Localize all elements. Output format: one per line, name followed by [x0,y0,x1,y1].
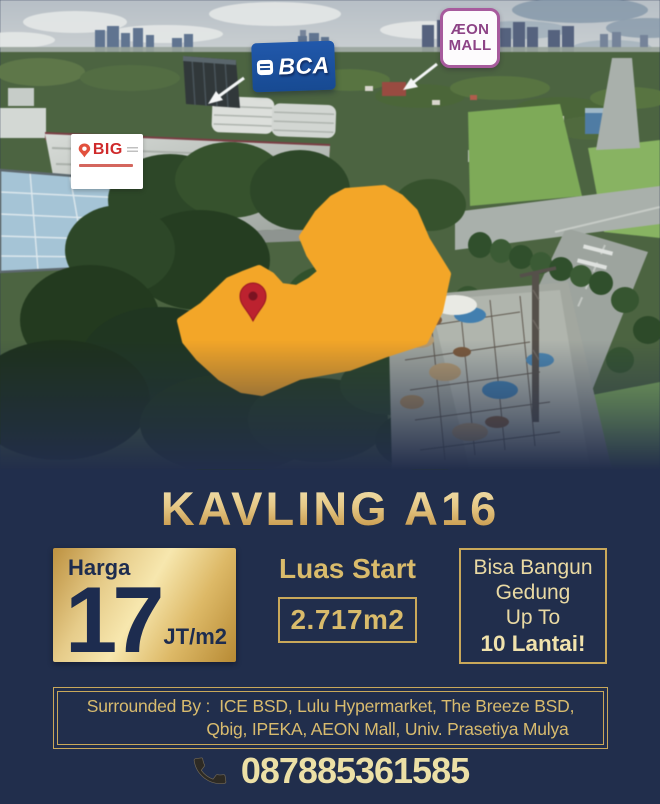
phone-icon [188,750,231,793]
surrounded-by-line2: Qbig, IPEKA, AEON Mall, Univ. Prasetiya … [58,718,603,741]
fine-print-line [127,147,138,153]
capacity-line-1: Bisa Bangun [473,555,592,580]
price-card: Harga 17 JT/m2 [53,548,236,662]
kavling-a16-poster: BCA ÆON MALL BIG KAVLING A16 Harga 17 JT… [0,0,660,804]
building-capacity-card: Bisa Bangun Gedung Up To 10 Lantai! [459,548,607,664]
poster-title: KAVLING A16 [0,481,660,536]
qbig-sign: BIG [71,134,143,189]
capacity-highlight: 10 Lantai! [480,630,585,658]
price-unit: JT/m2 [163,624,227,650]
area-value-box: 2.717m2 [278,597,417,643]
surrounded-by-list-part1: ICE BSD, Lulu Hypermarket, The Breeze BS… [219,696,574,716]
phone-row: 087885361585 [0,750,660,792]
qbig-pin-icon [78,142,91,159]
capacity-line-2: Gedung [496,580,571,605]
aeon-mall-sign: ÆON MALL [440,8,500,68]
phone-number: 087885361585 [241,750,469,792]
fine-print-line [79,164,133,167]
area-value: 2.717m2 [290,604,404,636]
aerial-photo: BCA ÆON MALL BIG [0,0,660,470]
aeon-label-line1: ÆON [451,22,489,38]
bca-label: BCA [278,52,330,81]
aeon-label-line2: MALL [449,38,492,54]
capacity-line-3: Up To [506,605,560,630]
bca-logo-icon [257,60,274,76]
bca-billboard: BCA [251,41,336,93]
price-value: 17 [65,583,160,656]
area-label: Luas Start [250,553,445,585]
surrounded-by-label: Surrounded By : [87,696,210,716]
photo-fade [0,340,660,470]
red-roof-building [382,82,406,96]
surrounded-by-inner-border: Surrounded By :ICE BSD, Lulu Hypermarket… [57,691,604,745]
surrounded-by-box: Surrounded By :ICE BSD, Lulu Hypermarket… [53,687,608,749]
qbig-label: BIG [93,141,123,159]
surrounded-by-line1: Surrounded By :ICE BSD, Lulu Hypermarket… [58,695,603,718]
